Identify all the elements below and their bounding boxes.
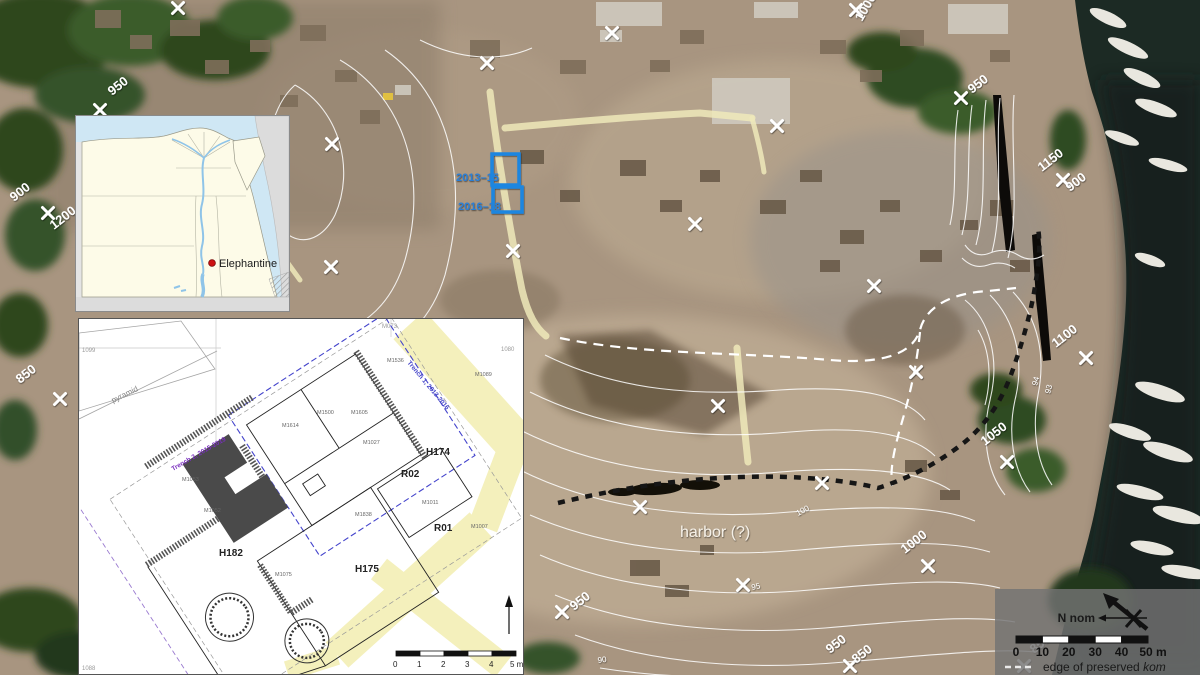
elephantine-label: Elephantine	[219, 258, 277, 270]
grid-label: M073	[382, 324, 398, 330]
plan-scale-unit: 5 m	[510, 660, 523, 669]
scale-tick: 40	[1115, 645, 1129, 659]
excavation-plan: 1099 1088 1080 M073 pyramid	[79, 319, 523, 674]
survey-label: 900	[1063, 169, 1089, 194]
plan-scale-tick: 3	[465, 660, 470, 669]
legend-graphics: N nom 0 10 20 30 40 50 m edge of preser	[995, 589, 1200, 675]
wall-label: M1052	[204, 508, 221, 514]
contour-label: 93	[1043, 383, 1054, 394]
survey-label: 850	[13, 361, 39, 386]
survey-label: 950	[823, 631, 849, 656]
area-label-2013-15: 2013–15	[456, 172, 499, 184]
kom-edge-dotted	[558, 228, 1039, 503]
grid-label: 1080	[501, 347, 515, 353]
egypt-map: Elephantine	[76, 116, 289, 311]
excavated-building	[183, 429, 289, 543]
survey-label: 950	[105, 73, 131, 98]
area-label-2016-18: 2016–18	[458, 201, 501, 213]
wall-label: M1053	[182, 477, 199, 483]
legend: N nom 0 10 20 30 40 50 m edge of preser	[995, 589, 1200, 675]
scale-tick-last: 50 m	[1139, 645, 1166, 659]
wall-label: M1605	[351, 410, 368, 416]
figure-root: 2013–15 2016–18 950 900 1200 850 950	[0, 0, 1200, 675]
excavation-plan-inset: 1099 1088 1080 M073 pyramid	[78, 318, 524, 675]
legend-scale-ticks: 0 10 20 30 40 50 m	[1013, 645, 1167, 659]
contour-label: 95	[751, 581, 762, 592]
grid-label: 1099	[82, 348, 96, 354]
room-label-h175: H175	[355, 564, 379, 575]
survey-label: 1000	[898, 527, 930, 557]
room-label-r01: R01	[434, 523, 453, 534]
elephantine-marker	[209, 260, 216, 267]
survey-label: 1100	[1049, 321, 1080, 350]
scale-tick: 10	[1036, 645, 1050, 659]
pyramid-outline	[79, 321, 217, 419]
trench2-boundary	[80, 509, 227, 674]
wall-label: M1614	[282, 423, 299, 429]
survey-label: 1000	[852, 0, 879, 23]
room-label-r02: R02	[401, 469, 420, 480]
wall-label: M1838	[355, 512, 372, 518]
scale-tick: 30	[1089, 645, 1103, 659]
white-dashed-line	[560, 288, 1016, 486]
scale-tick: 0	[1013, 645, 1020, 659]
survey-label: 950	[965, 71, 991, 96]
legend-scale-bar	[1016, 636, 1148, 643]
excavation-areas: 2013–15 2016–18	[456, 154, 522, 213]
harbor-label: harbor (?)	[680, 524, 750, 541]
survey-label: 1050	[978, 419, 1010, 449]
contour-label: 100	[795, 503, 811, 517]
survey-label: 950	[567, 588, 593, 613]
room-label-h174: H174	[426, 447, 450, 458]
wall-label: M1007	[471, 524, 488, 530]
wall-label: M1075	[275, 572, 292, 578]
plan-scale-tick: 0	[393, 660, 398, 669]
kom-legend-row: edge of preserved kom	[1005, 660, 1166, 674]
plan-scale-tick: 2	[441, 660, 446, 669]
survey-label: 900	[7, 179, 33, 204]
plan-scale-tick: 4	[489, 660, 494, 669]
survey-label: 1200	[47, 203, 79, 233]
grid-label: 1088	[82, 666, 96, 672]
plan-scale-tick: 1	[417, 660, 422, 669]
wall-label: M1011	[422, 500, 438, 506]
egypt-locator-inset: Elephantine	[75, 115, 290, 312]
wall-label: M1089	[475, 372, 492, 378]
scale-tick: 20	[1062, 645, 1076, 659]
wall-label: M1500	[317, 410, 334, 416]
kom-label: edge of preserved kom	[1043, 660, 1166, 674]
room-label-h182: H182	[219, 548, 243, 559]
north-arrow	[1098, 593, 1147, 629]
plan-north-arrow	[505, 595, 513, 634]
wall-label: M1027	[363, 440, 380, 446]
wall-label: M1536	[387, 358, 404, 364]
pyramid-label: pyramid	[110, 384, 140, 405]
north-label: N nom	[1058, 611, 1095, 625]
contour-label: 90	[597, 655, 608, 665]
survey-label: 1150	[1035, 145, 1066, 174]
